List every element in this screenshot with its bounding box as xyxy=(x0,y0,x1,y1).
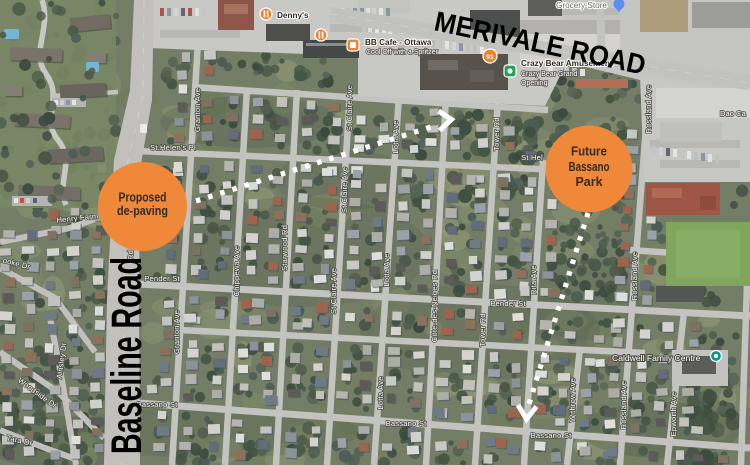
svg-text:Starwood Rd: Starwood Rd xyxy=(280,225,289,271)
svg-text:Rita Ave: Rita Ave xyxy=(529,265,538,295)
svg-text:Opening: Opening xyxy=(521,80,548,87)
svg-text:Park: Park xyxy=(576,175,603,189)
svg-text:Tower Rd: Tower Rd xyxy=(478,313,487,347)
svg-text:St Hel: St Hel xyxy=(521,153,543,162)
svg-text:Grocery Store: Grocery Store xyxy=(556,1,607,10)
svg-text:Tower Rd: Tower Rd xyxy=(492,117,501,151)
svg-text:Epworth Ave: Epworth Ave xyxy=(669,392,678,437)
svg-text:Lotta Ave: Lotta Ave xyxy=(382,253,391,286)
svg-text:Crazy Bear Grand: Crazy Bear Grand xyxy=(521,71,578,78)
svg-text:Proposed: Proposed xyxy=(119,191,167,205)
svg-text:Denny's: Denny's xyxy=(277,11,309,20)
svg-text:Baseline Road: Baseline Road xyxy=(103,257,151,454)
svg-text:Côte-des-Neiges Rd: Côte-des-Neiges Rd xyxy=(430,270,439,342)
svg-text:Rossland Ave: Rossland Ave xyxy=(644,85,653,134)
svg-text:Future: Future xyxy=(571,145,607,159)
svg-text:Granton Ave: Granton Ave xyxy=(172,310,181,354)
svg-text:Lotta Ave: Lotta Ave xyxy=(376,376,385,409)
svg-text:Bassano St: Bassano St xyxy=(386,419,428,428)
svg-text:Rossland Ave: Rossland Ave xyxy=(630,252,639,301)
svg-text:de-paving: de-paving xyxy=(117,204,168,218)
svg-text:Bassano: Bassano xyxy=(569,160,610,174)
svg-text:Caldwell Family Centre: Caldwell Family Centre xyxy=(612,353,701,363)
svg-text:Withrow Ave: Withrow Ave xyxy=(568,378,577,422)
svg-text:Pender St: Pender St xyxy=(490,299,526,308)
svg-text:Granton Ave: Granton Ave xyxy=(193,88,202,132)
svg-text:St Claire Ave: St Claire Ave xyxy=(345,85,354,131)
svg-text:Cool Off with a Spritzer: Cool Off with a Spritzer xyxy=(366,49,439,56)
svg-text:St Claire Ave: St Claire Ave xyxy=(329,268,338,314)
svg-text:Bassano St: Bassano St xyxy=(531,431,573,440)
svg-text:Chippewa Ave: Chippewa Ave xyxy=(232,246,241,297)
svg-text:St Claire Ave: St Claire Ave xyxy=(340,167,349,213)
svg-text:Rossland Ave: Rossland Ave xyxy=(619,381,628,430)
svg-text:Dao Ca: Dao Ca xyxy=(720,109,747,118)
svg-text:St.Helen's Pl: St.Helen's Pl xyxy=(150,143,196,152)
svg-text:91: 91 xyxy=(486,54,494,61)
svg-text:BB Cafe - Ottawa: BB Cafe - Ottawa xyxy=(365,38,432,47)
